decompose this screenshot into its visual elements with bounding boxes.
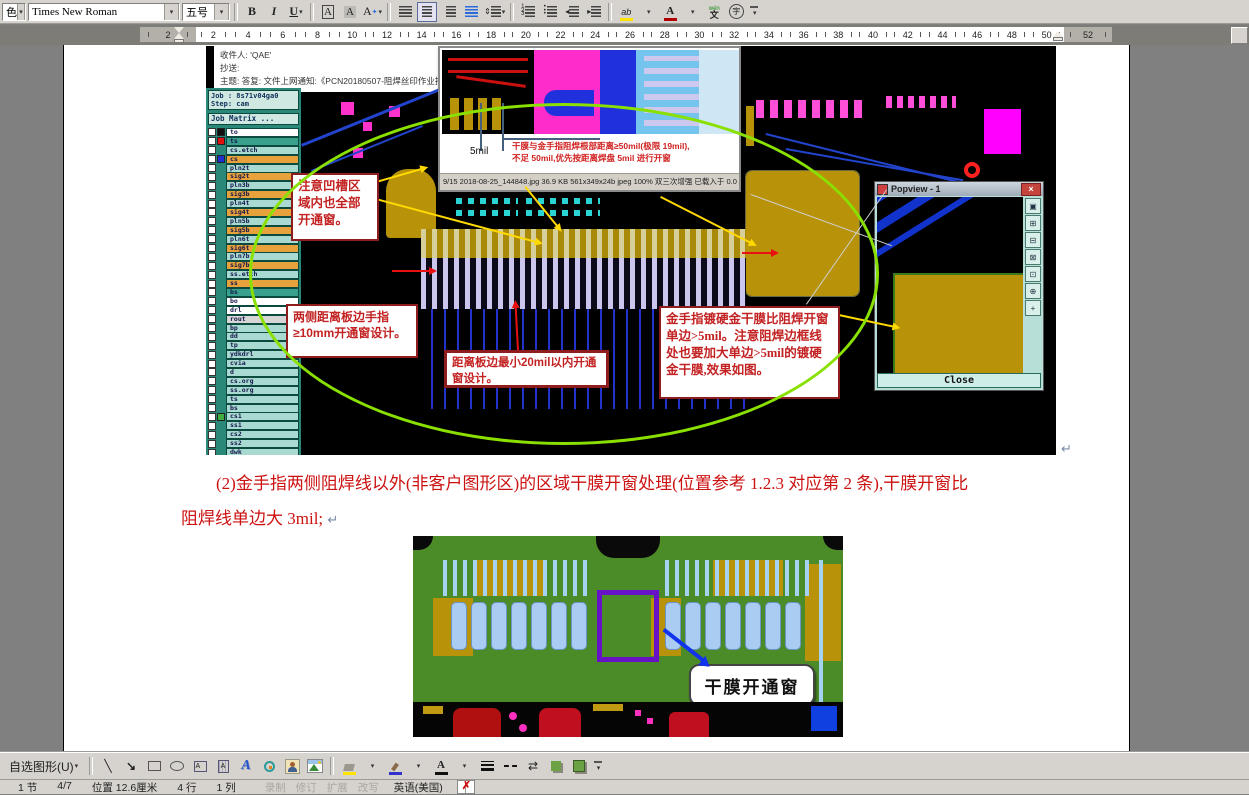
rectangle-icon bbox=[148, 761, 161, 771]
layer-visibility-checkbox[interactable] bbox=[208, 351, 216, 359]
clipart-button[interactable] bbox=[282, 756, 302, 776]
bullet-list-button[interactable]: ••• bbox=[540, 2, 560, 22]
status-cell: 4 行 bbox=[167, 780, 206, 795]
ruler-left-margin: 2 bbox=[140, 27, 196, 42]
layer-row[interactable]: cs.etch bbox=[208, 146, 299, 155]
layer-visibility-checkbox[interactable] bbox=[208, 449, 216, 456]
character-scale-icon: A bbox=[363, 4, 372, 19]
layer-row[interactable]: to bbox=[208, 128, 299, 137]
status-mode-toggle[interactable]: 录制 bbox=[260, 780, 291, 795]
layer-visibility-checkbox[interactable] bbox=[208, 155, 216, 163]
pcb-art bbox=[596, 536, 660, 558]
close-icon[interactable]: × bbox=[1021, 183, 1041, 196]
ruler-cell: 4 bbox=[231, 27, 266, 42]
status-cell: 1 列 bbox=[207, 780, 246, 795]
wordart-icon: A bbox=[241, 758, 250, 774]
layer-visibility-checkbox[interactable] bbox=[208, 306, 216, 314]
layer-name[interactable]: ss1 bbox=[226, 421, 299, 430]
toolbar-options-button[interactable]: ▾ bbox=[748, 2, 760, 22]
pad bbox=[745, 602, 761, 650]
layer-visibility-checkbox[interactable] bbox=[208, 235, 216, 243]
dash-style-icon bbox=[504, 765, 517, 767]
layer-color-swatch[interactable] bbox=[217, 137, 225, 145]
layer-name[interactable]: d bbox=[226, 368, 299, 377]
layer-visibility-checkbox[interactable] bbox=[208, 173, 216, 181]
popview-viewport[interactable] bbox=[877, 197, 1023, 375]
arrow-style-button[interactable]: ⇄ bbox=[523, 756, 543, 776]
popview-tool-button[interactable]: ▣ bbox=[1025, 198, 1041, 214]
layer-visibility-checkbox[interactable] bbox=[208, 244, 216, 252]
viewer-status-bar: 9/15 2018-08-25_144848.jpg 36.9 KB 561x3… bbox=[440, 173, 739, 190]
layer-name[interactable]: pln6t bbox=[226, 235, 299, 244]
character-shading-button[interactable]: A bbox=[340, 2, 360, 22]
separator bbox=[310, 3, 314, 21]
document-page[interactable]: 收件人: 'QAE' 抄送: 主题: 答复: 文件上网通知:《PCN201805… bbox=[63, 45, 1130, 752]
format-toolbar: 色▾ Times New Roman▾ 五号▾ B I U▾ A A A✦▾ ⇕… bbox=[0, 0, 1249, 24]
horizontal-ruler[interactable]: 2 24681012141618202224262830323436384042… bbox=[0, 25, 1249, 45]
chevron-down-icon[interactable]: ▾ bbox=[299, 8, 303, 16]
layer-visibility-checkbox[interactable] bbox=[208, 377, 216, 385]
layer-row[interactable]: bs bbox=[208, 404, 299, 413]
dash-style-button[interactable] bbox=[500, 756, 520, 776]
layer-visibility-checkbox[interactable] bbox=[208, 164, 216, 172]
layer-name[interactable]: cvia bbox=[226, 359, 299, 368]
layer-name[interactable]: bs bbox=[226, 404, 299, 413]
line-tool-button[interactable]: ╲ bbox=[98, 756, 118, 776]
layer-visibility-checkbox[interactable] bbox=[208, 431, 216, 439]
fill-color-bar bbox=[343, 772, 356, 775]
layer-visibility-checkbox[interactable] bbox=[208, 333, 216, 341]
chevron-down-icon[interactable]: ▾ bbox=[379, 8, 383, 16]
line-style-icon bbox=[481, 761, 494, 772]
character-border-icon: A bbox=[322, 5, 334, 19]
separator bbox=[89, 757, 93, 775]
line-icon: ╲ bbox=[104, 759, 111, 773]
align-right-button[interactable] bbox=[439, 2, 459, 22]
layer-visibility-checkbox[interactable] bbox=[208, 262, 216, 270]
underline-button[interactable]: U▾ bbox=[286, 2, 306, 22]
layer-name[interactable]: cs2 bbox=[226, 430, 299, 439]
layer-visibility-checkbox[interactable] bbox=[208, 386, 216, 394]
insert-picture-button[interactable] bbox=[305, 756, 325, 776]
pad bbox=[571, 602, 587, 650]
layer-row[interactable]: bs bbox=[208, 288, 299, 297]
layer-visibility-checkbox[interactable] bbox=[208, 191, 216, 199]
ruler-right-margin: 52 bbox=[1064, 27, 1112, 42]
layer-row[interactable]: cs bbox=[208, 155, 299, 164]
line-style-button[interactable] bbox=[477, 756, 497, 776]
font-color-button[interactable]: A bbox=[660, 2, 680, 22]
layer-name[interactable]: cs bbox=[226, 155, 299, 164]
pad bbox=[451, 602, 467, 650]
email-cc-line: 抄送: bbox=[220, 62, 440, 75]
font-color-dropdown[interactable]: ▾ bbox=[454, 756, 474, 776]
align-justify-icon bbox=[399, 6, 412, 17]
diagram-button[interactable] bbox=[259, 756, 279, 776]
layer-visibility-checkbox[interactable] bbox=[208, 280, 216, 288]
font-color-bar bbox=[664, 18, 677, 21]
layer-name[interactable]: sig7b bbox=[226, 261, 299, 270]
layer-row[interactable]: pln6t bbox=[208, 235, 299, 244]
dryfilm-window-outline bbox=[597, 590, 659, 662]
layer-name[interactable]: sig5b bbox=[226, 226, 299, 235]
pcb-art bbox=[636, 50, 699, 134]
bold-icon: B bbox=[248, 4, 256, 19]
cam-layer-panel: Job : 8s71v04ga0 Step: cam Job Matrix ..… bbox=[206, 88, 301, 455]
layer-row[interactable]: cs.org bbox=[208, 377, 299, 386]
ruler-cell: 52 bbox=[1064, 27, 1112, 42]
pcb-art bbox=[456, 210, 518, 216]
align-distribute-button[interactable] bbox=[461, 2, 481, 22]
vertical-textbox-tool-button[interactable]: A bbox=[213, 756, 233, 776]
layer-visibility-checkbox[interactable] bbox=[208, 404, 216, 412]
layer-visibility-checkbox[interactable] bbox=[208, 413, 216, 421]
layer-row[interactable]: ts bbox=[208, 395, 299, 404]
character-border-button[interactable]: A bbox=[318, 2, 338, 22]
popview-tool-button[interactable]: ⊡ bbox=[1025, 266, 1041, 282]
threed-style-button[interactable] bbox=[569, 756, 589, 776]
layer-name[interactable]: ts bbox=[226, 137, 299, 146]
underline-icon: U bbox=[289, 4, 298, 19]
red-arrow bbox=[742, 252, 772, 254]
fill-color-dropdown[interactable]: ▾ bbox=[362, 756, 382, 776]
status-mode-toggle[interactable]: 修订 bbox=[291, 780, 322, 795]
pcb-art bbox=[746, 88, 1056, 183]
rectangle-tool-button[interactable] bbox=[144, 756, 164, 776]
layer-name[interactable]: ss bbox=[226, 279, 299, 288]
layer-row[interactable]: ss2 bbox=[208, 439, 299, 448]
layer-name[interactable]: to bbox=[226, 128, 299, 137]
popview-titlebar[interactable]: Popview - 1 × bbox=[875, 182, 1043, 196]
layer-row[interactable]: pln7b bbox=[208, 252, 299, 261]
arrow-tool-button[interactable]: ↘ bbox=[121, 756, 141, 776]
ruler-cell: 38 bbox=[821, 27, 856, 42]
layer-list[interactable]: to ts cs.etch cs bbox=[208, 128, 299, 455]
ruler-cell: 16 bbox=[439, 27, 474, 42]
status-bar: 1 节4/7位置 12.6厘米4 行1 列 录制修订扩展改写 英语(美国) ✗ bbox=[0, 779, 1249, 794]
line-color-icon bbox=[391, 763, 399, 772]
ruler-cell: 24 bbox=[578, 27, 613, 42]
inset-note-line2: 不足 50mil,优先按距离焊盘 5mil 进行开窗 bbox=[512, 152, 738, 164]
pad bbox=[551, 602, 567, 650]
ruler-cell: 2 bbox=[196, 27, 231, 42]
chevron-down-icon[interactable]: ▾ bbox=[214, 3, 229, 21]
ruler-cell: 14 bbox=[404, 27, 439, 42]
popview-toolbar: ▣⊞⊟⊠⊡⊕+ bbox=[1023, 197, 1043, 375]
pcb-art bbox=[442, 50, 534, 134]
decrease-indent-icon bbox=[569, 6, 579, 17]
inset-note: 干膜与金手指阻焊根部距离≥50mil(极限 19mil), 不足 50mil,优… bbox=[512, 140, 738, 164]
increase-indent-button[interactable]: ▸ bbox=[584, 2, 604, 22]
layer-visibility-checkbox[interactable] bbox=[208, 137, 216, 145]
finger-strip-bottom bbox=[421, 258, 746, 309]
layer-row[interactable]: cs1 bbox=[208, 413, 299, 422]
popview-window[interactable]: Popview - 1 × ▣⊞⊟⊠⊡⊕+ Close bbox=[874, 181, 1044, 391]
pcb-art bbox=[534, 50, 600, 134]
indent-marker-right[interactable] bbox=[1053, 31, 1063, 41]
separator bbox=[330, 757, 334, 775]
layer-row[interactable]: ss bbox=[208, 279, 299, 288]
layer-row[interactable]: pln4t bbox=[208, 199, 299, 208]
line-color-button[interactable] bbox=[385, 756, 405, 776]
layer-name[interactable]: cs.etch bbox=[226, 146, 299, 155]
layer-visibility-checkbox[interactable] bbox=[208, 217, 216, 225]
layer-name[interactable]: pln5b bbox=[226, 217, 299, 226]
status-mode-toggle[interactable]: 扩展 bbox=[322, 780, 353, 795]
layer-name[interactable]: ss.org bbox=[226, 386, 299, 395]
inset-photo-viewer[interactable]: 5mil 干膜与金手指阻焊根部距离≥50mil(极限 19mil), 不足 50… bbox=[438, 46, 741, 192]
annotation-edge[interactable]: 距离板边最小20mil以内开通窗设计。 bbox=[444, 350, 609, 388]
layer-name[interactable]: cs1 bbox=[226, 412, 299, 421]
ruler-cell: 32 bbox=[717, 27, 752, 42]
layer-row[interactable]: pln3b bbox=[208, 181, 299, 190]
layer-row[interactable]: d bbox=[208, 368, 299, 377]
font-color-icon: A bbox=[666, 5, 674, 17]
popview-tool-button[interactable]: ⊞ bbox=[1025, 215, 1041, 231]
ruler-cell: 46 bbox=[960, 27, 995, 42]
popview-close-button[interactable]: Close bbox=[877, 373, 1041, 388]
layer-visibility-checkbox[interactable] bbox=[208, 422, 216, 430]
layer-name[interactable]: bs bbox=[226, 288, 299, 297]
job-matrix-button[interactable]: Job Matrix ... bbox=[208, 113, 299, 125]
increase-indent-icon bbox=[591, 6, 601, 17]
spellcheck-icon[interactable]: ✗ bbox=[457, 780, 475, 794]
popview-tool-button[interactable]: + bbox=[1025, 300, 1041, 316]
pad bbox=[705, 602, 721, 650]
popview-tool-button[interactable]: ⊠ bbox=[1025, 249, 1041, 265]
font-color-dropdown[interactable]: ▾ bbox=[682, 2, 702, 22]
chevron-down-icon: ▾ bbox=[371, 762, 375, 770]
layer-visibility-checkbox[interactable] bbox=[208, 324, 216, 332]
layer-row[interactable]: ss.etch bbox=[208, 270, 299, 279]
finger-strip bbox=[665, 560, 813, 596]
font-size-combo[interactable]: 五号▾ bbox=[182, 3, 230, 21]
layer-visibility-checkbox[interactable] bbox=[208, 342, 216, 350]
layer-visibility-checkbox[interactable] bbox=[208, 200, 216, 208]
chevron-down-icon[interactable]: ▾ bbox=[164, 3, 179, 21]
threed-style-icon bbox=[573, 760, 585, 772]
layer-visibility-checkbox[interactable] bbox=[208, 315, 216, 323]
character-scale-button[interactable]: A✦▾ bbox=[362, 2, 383, 22]
decrease-indent-button[interactable]: ◂ bbox=[562, 2, 582, 22]
job-label: Job : 8s71v04ga0 Step: cam bbox=[208, 90, 299, 110]
embedded-image-cam-screenshot[interactable]: 收件人: 'QAE' 抄送: 主题: 答复: 文件上网通知:《PCN201805… bbox=[206, 46, 1056, 455]
ruler-cell: 34 bbox=[752, 27, 787, 42]
separator bbox=[387, 3, 391, 21]
layer-row[interactable]: sig2t bbox=[208, 172, 299, 181]
paragraph-line-1: (2)金手指两侧阻焊线以外(非客户图形区)的区域干膜开窗处理(位置参考 1.2.… bbox=[216, 469, 968, 494]
pcb-art bbox=[456, 198, 518, 204]
status-cells: 1 节4/7位置 12.6厘米4 行1 列 bbox=[8, 780, 246, 795]
layer-row[interactable]: pln5b bbox=[208, 217, 299, 226]
email-to-line: 收件人: 'QAE' bbox=[220, 49, 440, 62]
clipart-icon bbox=[285, 759, 300, 774]
layer-row[interactable]: pln2t bbox=[208, 164, 299, 173]
layer-name[interactable]: sig2t bbox=[226, 172, 299, 181]
highlight-button[interactable]: ab bbox=[616, 2, 636, 22]
ruler-cell: 20 bbox=[508, 27, 543, 42]
layer-visibility-checkbox[interactable] bbox=[208, 226, 216, 234]
style-combo[interactable]: 色▾ bbox=[2, 3, 26, 21]
bold-button[interactable]: B bbox=[242, 2, 262, 22]
italic-button[interactable]: I bbox=[264, 2, 284, 22]
ruler-corner-button[interactable] bbox=[1231, 27, 1248, 44]
paragraph-line-2-text: 阻焊线单边大 3mil; bbox=[181, 509, 323, 528]
layer-name[interactable]: cs.org bbox=[226, 377, 299, 386]
font-size-value: 五号 bbox=[186, 4, 208, 20]
font-color-button[interactable]: A bbox=[431, 756, 451, 776]
layer-name[interactable]: pln3b bbox=[226, 181, 299, 190]
pad bbox=[725, 602, 741, 650]
layer-row[interactable]: sig7b bbox=[208, 261, 299, 270]
ruler-cell: 36 bbox=[786, 27, 821, 42]
layer-row[interactable]: sig3b bbox=[208, 190, 299, 199]
layer-color-swatch[interactable] bbox=[217, 128, 225, 136]
layer-name[interactable]: sig6t bbox=[226, 244, 299, 253]
fill-color-button[interactable] bbox=[339, 756, 359, 776]
status-mode-toggle[interactable]: 改写 bbox=[353, 780, 384, 795]
chevron-down-icon: ▾ bbox=[597, 764, 601, 772]
chevron-down-icon[interactable]: ▾ bbox=[502, 8, 506, 16]
bullet-list-icon bbox=[547, 6, 557, 17]
layer-visibility-checkbox[interactable] bbox=[208, 271, 216, 279]
layer-visibility-checkbox[interactable] bbox=[208, 297, 216, 305]
font-name-value: Times New Roman bbox=[32, 6, 117, 18]
dryfilm-label: 干膜开通窗 bbox=[689, 664, 815, 706]
pad bbox=[785, 602, 801, 650]
layer-name[interactable]: pln7b bbox=[226, 252, 299, 261]
layer-name[interactable]: ss.etch bbox=[226, 270, 299, 279]
align-center-button[interactable] bbox=[417, 2, 437, 22]
popview-tool-button[interactable]: ⊟ bbox=[1025, 232, 1041, 248]
layer-row[interactable]: cs2 bbox=[208, 430, 299, 439]
layer-row[interactable]: ts bbox=[208, 137, 299, 146]
align-justify-button[interactable] bbox=[395, 2, 415, 22]
layer-row[interactable]: dwk bbox=[208, 448, 299, 455]
numbered-list-icon bbox=[525, 6, 535, 17]
layer-visibility-checkbox[interactable] bbox=[208, 182, 216, 190]
align-center-icon bbox=[422, 6, 432, 17]
ruler-cell: 44 bbox=[925, 27, 960, 42]
layer-visibility-checkbox[interactable] bbox=[208, 288, 216, 296]
layer-visibility-checkbox[interactable] bbox=[208, 208, 216, 216]
font-color-bar bbox=[435, 772, 448, 775]
separator bbox=[510, 3, 514, 21]
line-spacing-button[interactable]: ⇕▾ bbox=[483, 2, 506, 22]
popview-tool-button[interactable]: ⊕ bbox=[1025, 283, 1041, 299]
layer-visibility-checkbox[interactable] bbox=[208, 253, 216, 261]
yellow-arrow bbox=[524, 186, 558, 227]
highlight-dropdown[interactable]: ▾ bbox=[638, 2, 658, 22]
annotation-sides[interactable]: 两侧距离板边手指≥10mm开通窗设计。 bbox=[286, 304, 418, 358]
layer-row[interactable]: ss.org bbox=[208, 386, 299, 395]
status-modes: 录制修订扩展改写 bbox=[260, 780, 384, 795]
dimension-line bbox=[502, 103, 504, 151]
annotation-gold[interactable]: 金手指镀硬金干膜比阻焊开窗单边>5mil。注意阻焊边框线处也要加大单边>5mil… bbox=[659, 306, 840, 399]
numbered-list-button[interactable]: 123 bbox=[518, 2, 538, 22]
layer-row[interactable]: sig6t bbox=[208, 244, 299, 253]
diagram-icon bbox=[264, 761, 275, 772]
textbox-tool-button[interactable]: A bbox=[190, 756, 210, 776]
layer-visibility-checkbox[interactable] bbox=[208, 440, 216, 448]
dimension-label: 5mil bbox=[470, 146, 488, 157]
fill-color-icon bbox=[343, 764, 355, 771]
layer-name[interactable]: ss2 bbox=[226, 439, 299, 448]
layer-name[interactable]: dwk bbox=[226, 448, 299, 455]
align-distribute-icon bbox=[465, 6, 478, 17]
status-cell: 1 节 bbox=[8, 780, 47, 795]
embedded-image-dryfilm[interactable]: 干膜开通窗 bbox=[413, 536, 843, 737]
pcb-art bbox=[823, 536, 843, 550]
layer-name[interactable]: pln4t bbox=[226, 199, 299, 208]
toolbar-options-button[interactable]: ▾ bbox=[592, 756, 604, 776]
layer-name[interactable]: sig4t bbox=[226, 208, 299, 217]
chevron-down-icon: ▾ bbox=[753, 9, 757, 17]
layer-visibility-checkbox[interactable] bbox=[208, 395, 216, 403]
job-line: Job : 8s71v04ga0 bbox=[211, 92, 296, 100]
ruler-cell: 42 bbox=[890, 27, 925, 42]
layer-visibility-checkbox[interactable] bbox=[208, 360, 216, 368]
layer-name[interactable]: ts bbox=[226, 395, 299, 404]
red-arrow bbox=[392, 270, 430, 272]
layer-name[interactable]: pln2t bbox=[226, 164, 299, 173]
oval-tool-button[interactable] bbox=[167, 756, 187, 776]
layer-row[interactable]: ss1 bbox=[208, 421, 299, 430]
status-cell: 4/7 bbox=[47, 780, 82, 795]
line-color-dropdown[interactable]: ▾ bbox=[408, 756, 428, 776]
ruler-cell: 30 bbox=[682, 27, 717, 42]
ruler-cell: 26 bbox=[613, 27, 648, 42]
layer-name[interactable]: sig3b bbox=[226, 190, 299, 199]
ruler-cell: 10 bbox=[335, 27, 370, 42]
layer-visibility-checkbox[interactable] bbox=[208, 368, 216, 376]
textbox-icon: A bbox=[194, 761, 207, 772]
ruler-cell: 6 bbox=[265, 27, 300, 42]
layer-row[interactable]: cvia bbox=[208, 359, 299, 368]
layer-color-swatch[interactable] bbox=[217, 413, 225, 421]
pad bbox=[765, 602, 781, 650]
ruler-cell: 12 bbox=[370, 27, 405, 42]
annotation-notch[interactable]: 注意凹槽区域内也全部开通窗。 bbox=[291, 173, 379, 241]
phonetic-guide-button[interactable]: wén文 bbox=[704, 2, 724, 22]
enclose-characters-button[interactable]: 字 bbox=[726, 2, 746, 22]
pcb-art bbox=[699, 50, 739, 134]
ruler-cell: 8 bbox=[300, 27, 335, 42]
chevron-down-icon: ▾ bbox=[417, 762, 421, 770]
layer-visibility-checkbox[interactable] bbox=[208, 146, 216, 154]
drawing-toolbar: 自选图形(U)▾ ╲ ↘ A A A ▾ ▾ A ▾ ⇄ ▾ bbox=[0, 752, 1249, 779]
dimension-line bbox=[480, 103, 482, 151]
email-header: 收件人: 'QAE' 抄送: 主题: 答复: 文件上网通知:《PCN201805… bbox=[214, 46, 440, 92]
layer-row[interactable]: sig5b bbox=[208, 226, 299, 235]
indent-marker-left[interactable] bbox=[174, 27, 184, 43]
chevron-down-icon[interactable]: ▾ bbox=[17, 3, 25, 21]
popview-title: Popview - 1 bbox=[891, 184, 941, 194]
arrow-style-icon: ⇄ bbox=[528, 759, 538, 773]
autoshapes-label: 自选图形(U) bbox=[9, 758, 74, 775]
separator bbox=[234, 3, 238, 21]
ruler-cell: 18 bbox=[474, 27, 509, 42]
ruler-cell: 40 bbox=[856, 27, 891, 42]
wordart-button[interactable]: A bbox=[236, 756, 256, 776]
font-name-combo[interactable]: Times New Roman▾ bbox=[28, 3, 180, 21]
layer-row[interactable]: sig4t bbox=[208, 208, 299, 217]
layer-color-swatch[interactable] bbox=[217, 155, 225, 163]
shadow-style-button[interactable] bbox=[546, 756, 566, 776]
layer-visibility-checkbox[interactable] bbox=[208, 128, 216, 136]
shadow-style-icon bbox=[551, 761, 561, 771]
autoshapes-button[interactable]: 自选图形(U)▾ bbox=[6, 756, 84, 776]
